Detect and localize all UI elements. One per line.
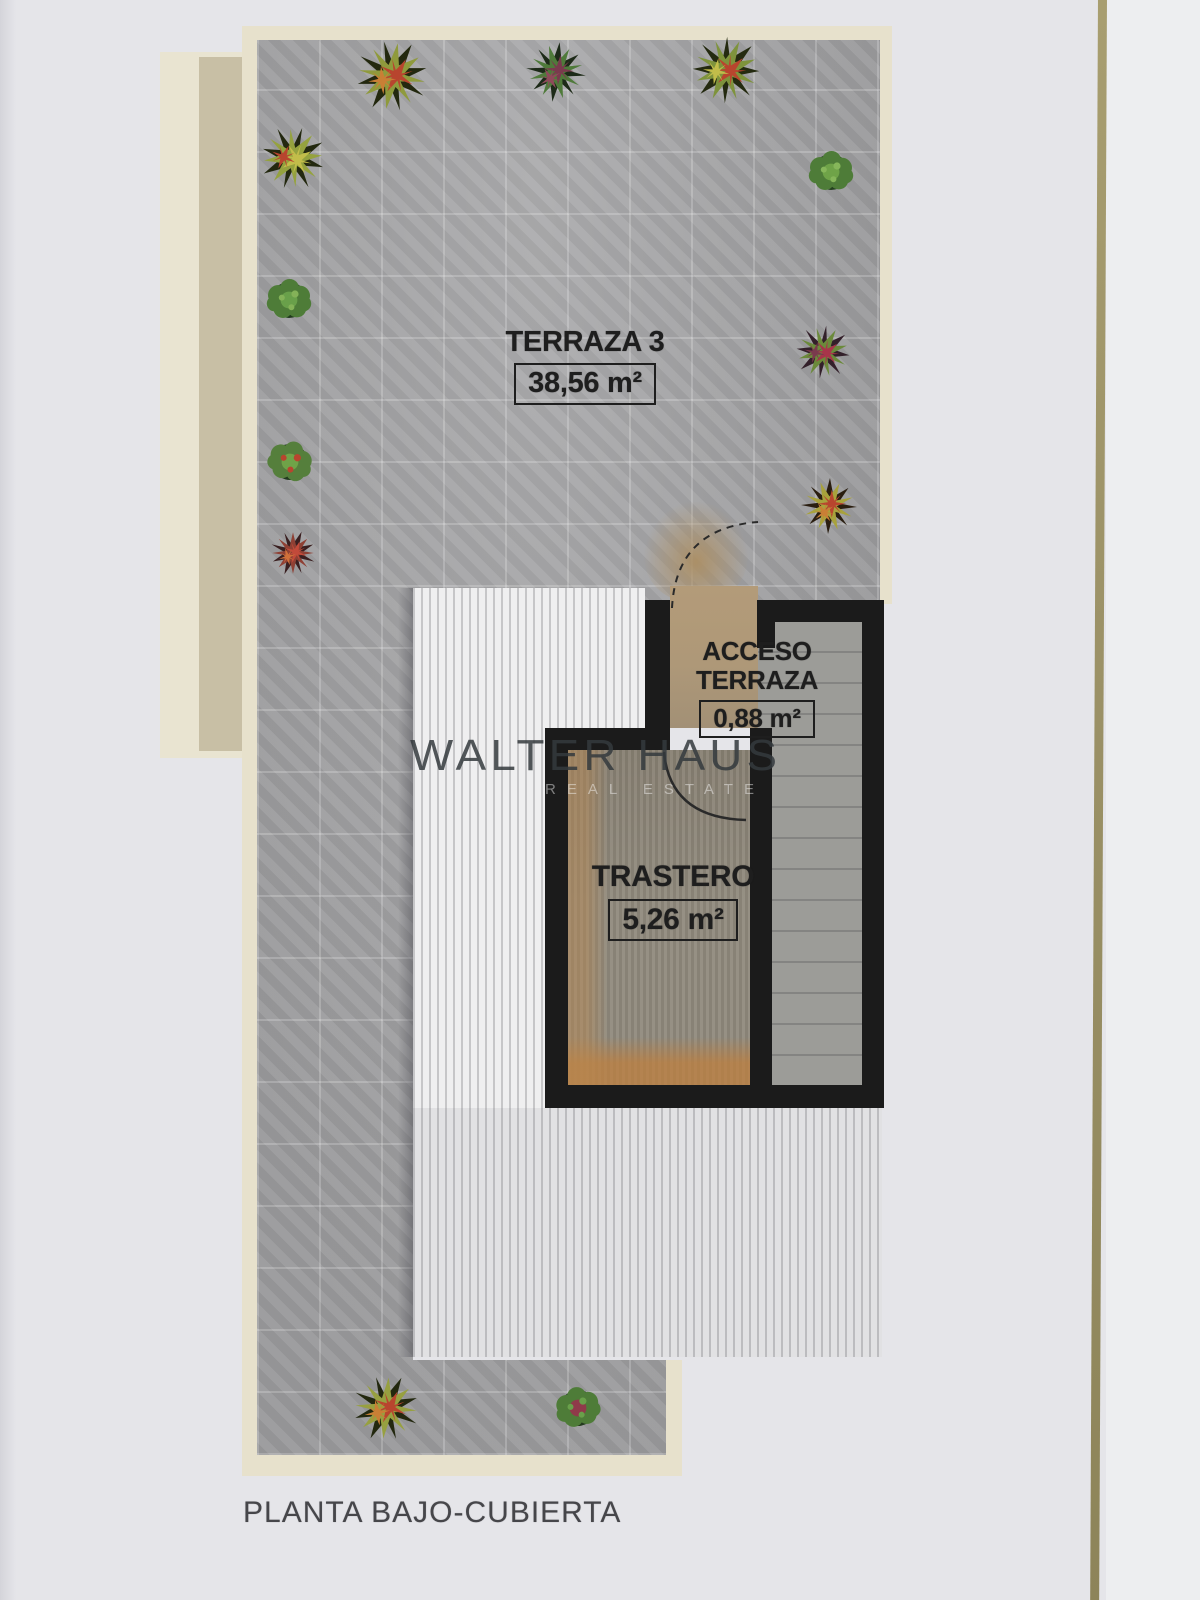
paper-right-panel	[1106, 0, 1200, 1600]
room-name: TERRAZA 3	[470, 326, 700, 358]
watermark-brand: WALTER HAUS	[410, 731, 800, 781]
floorplan-scan: TERRAZA 3 38,56 m² ACCESO TERRAZA 0,88 m…	[0, 0, 1200, 1600]
page-fold-line	[1090, 0, 1107, 1600]
plan-caption: PLANTA BAJO-CUBIERTA	[243, 1496, 663, 1530]
side-walkway	[199, 57, 243, 751]
deck-edge-shadow	[398, 588, 413, 1357]
watermark-tagline: REAL ESTATE	[535, 781, 775, 798]
paper-edge-shadow	[0, 0, 16, 1600]
room-label-acceso: ACCESO TERRAZA 0,88 m²	[642, 637, 872, 738]
room-label-terraza: TERRAZA 3 38,56 m²	[470, 326, 700, 405]
room-name: TRASTERO	[563, 860, 783, 894]
room-area: 38,56 m²	[514, 363, 656, 404]
wall	[545, 1085, 884, 1108]
room-name: ACCESO TERRAZA	[642, 637, 872, 695]
room-area: 5,26 m²	[608, 899, 737, 942]
room-label-trastero: TRASTERO 5,26 m²	[563, 860, 783, 941]
deck-shading	[413, 1108, 882, 1357]
